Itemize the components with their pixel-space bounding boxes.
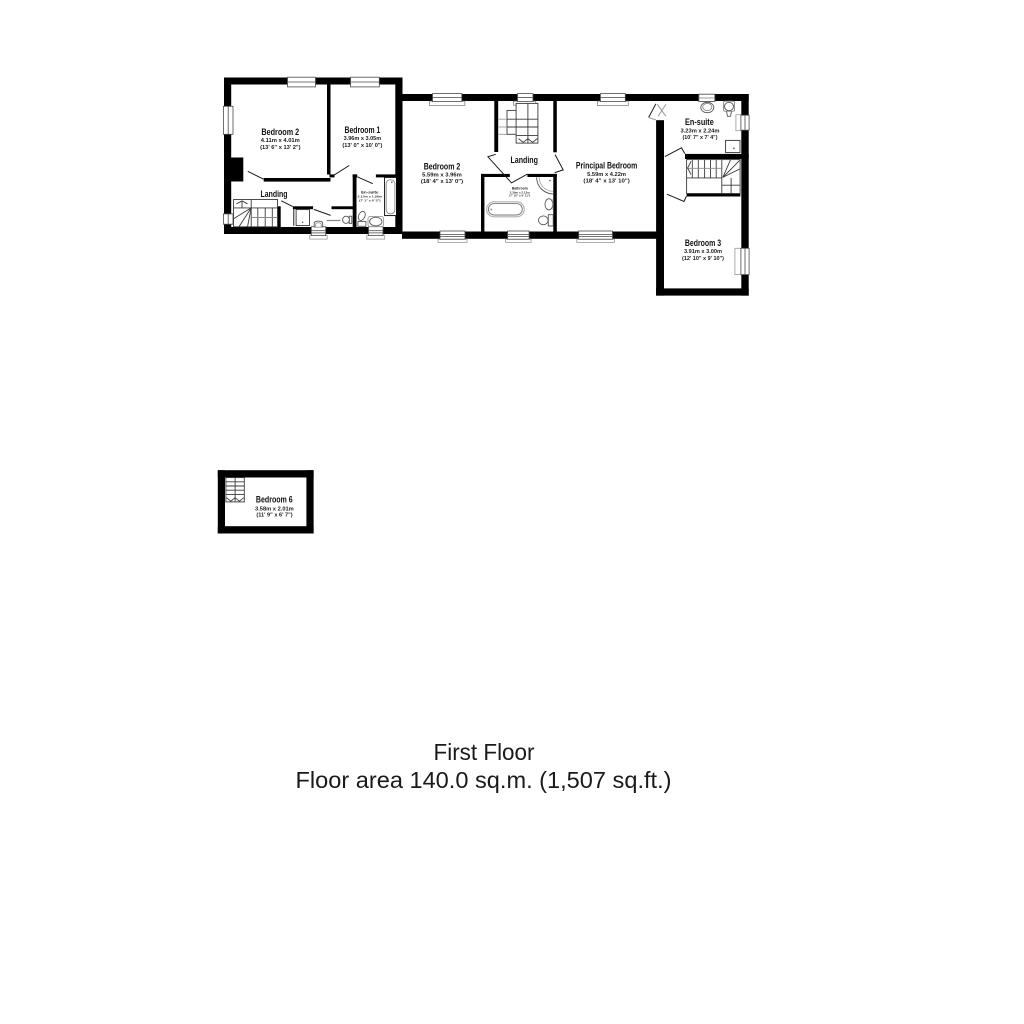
svg-text:Bedroom 6: Bedroom 6	[256, 494, 293, 504]
svg-text:Bedroom 1: Bedroom 1	[345, 125, 381, 135]
svg-text:Landing: Landing	[510, 155, 538, 165]
svg-text:5.59m x 3.96m: 5.59m x 3.96m	[422, 172, 462, 178]
svg-text:4.11m x 4.01m: 4.11m x 4.01m	[261, 138, 300, 144]
svg-text:(7' 10" x 6' 11"): (7' 10" x 6' 11")	[509, 194, 530, 198]
svg-text:Floor area 140.0 sq.m. (1,507: Floor area 140.0 sq.m. (1,507 sq.ft.)	[296, 767, 672, 793]
svg-text:Bedroom 2: Bedroom 2	[261, 127, 299, 137]
svg-text:First Floor: First Floor	[434, 739, 535, 765]
svg-text:(13' 0" x 10' 0"): (13' 0" x 10' 0")	[342, 143, 382, 149]
svg-text:Landing: Landing	[261, 189, 288, 199]
svg-text:3.23m x 2.24m: 3.23m x 2.24m	[681, 128, 720, 134]
svg-text:(18' 4" x 13' 10"): (18' 4" x 13' 10")	[583, 179, 629, 185]
svg-text:(12' 10" x 9' 10"): (12' 10" x 9' 10")	[682, 256, 724, 262]
svg-text:(7' 1" x 6' 5"): (7' 1" x 6' 5")	[359, 198, 381, 202]
svg-text:Bedroom 3: Bedroom 3	[685, 238, 721, 248]
svg-text:Bedroom 2: Bedroom 2	[424, 161, 461, 171]
svg-text:En-suite: En-suite	[685, 117, 714, 127]
svg-text:(13' 6" x 13' 2"): (13' 6" x 13' 2")	[260, 145, 300, 151]
svg-text:5.59m x 4.22m: 5.59m x 4.22m	[587, 172, 626, 178]
svg-text:Principal Bedroom: Principal Bedroom	[576, 161, 637, 171]
svg-text:3.91m x 3.00m: 3.91m x 3.00m	[684, 249, 722, 255]
svg-text:(11' 9" x 6' 7"): (11' 9" x 6' 7")	[256, 512, 292, 518]
svg-text:(18' 4" x 13' 0"): (18' 4" x 13' 0")	[421, 179, 463, 185]
svg-text:3.96m x 3.05m: 3.96m x 3.05m	[344, 136, 382, 142]
svg-text:(10' 7" x 7' 4"): (10' 7" x 7' 4")	[683, 135, 718, 141]
